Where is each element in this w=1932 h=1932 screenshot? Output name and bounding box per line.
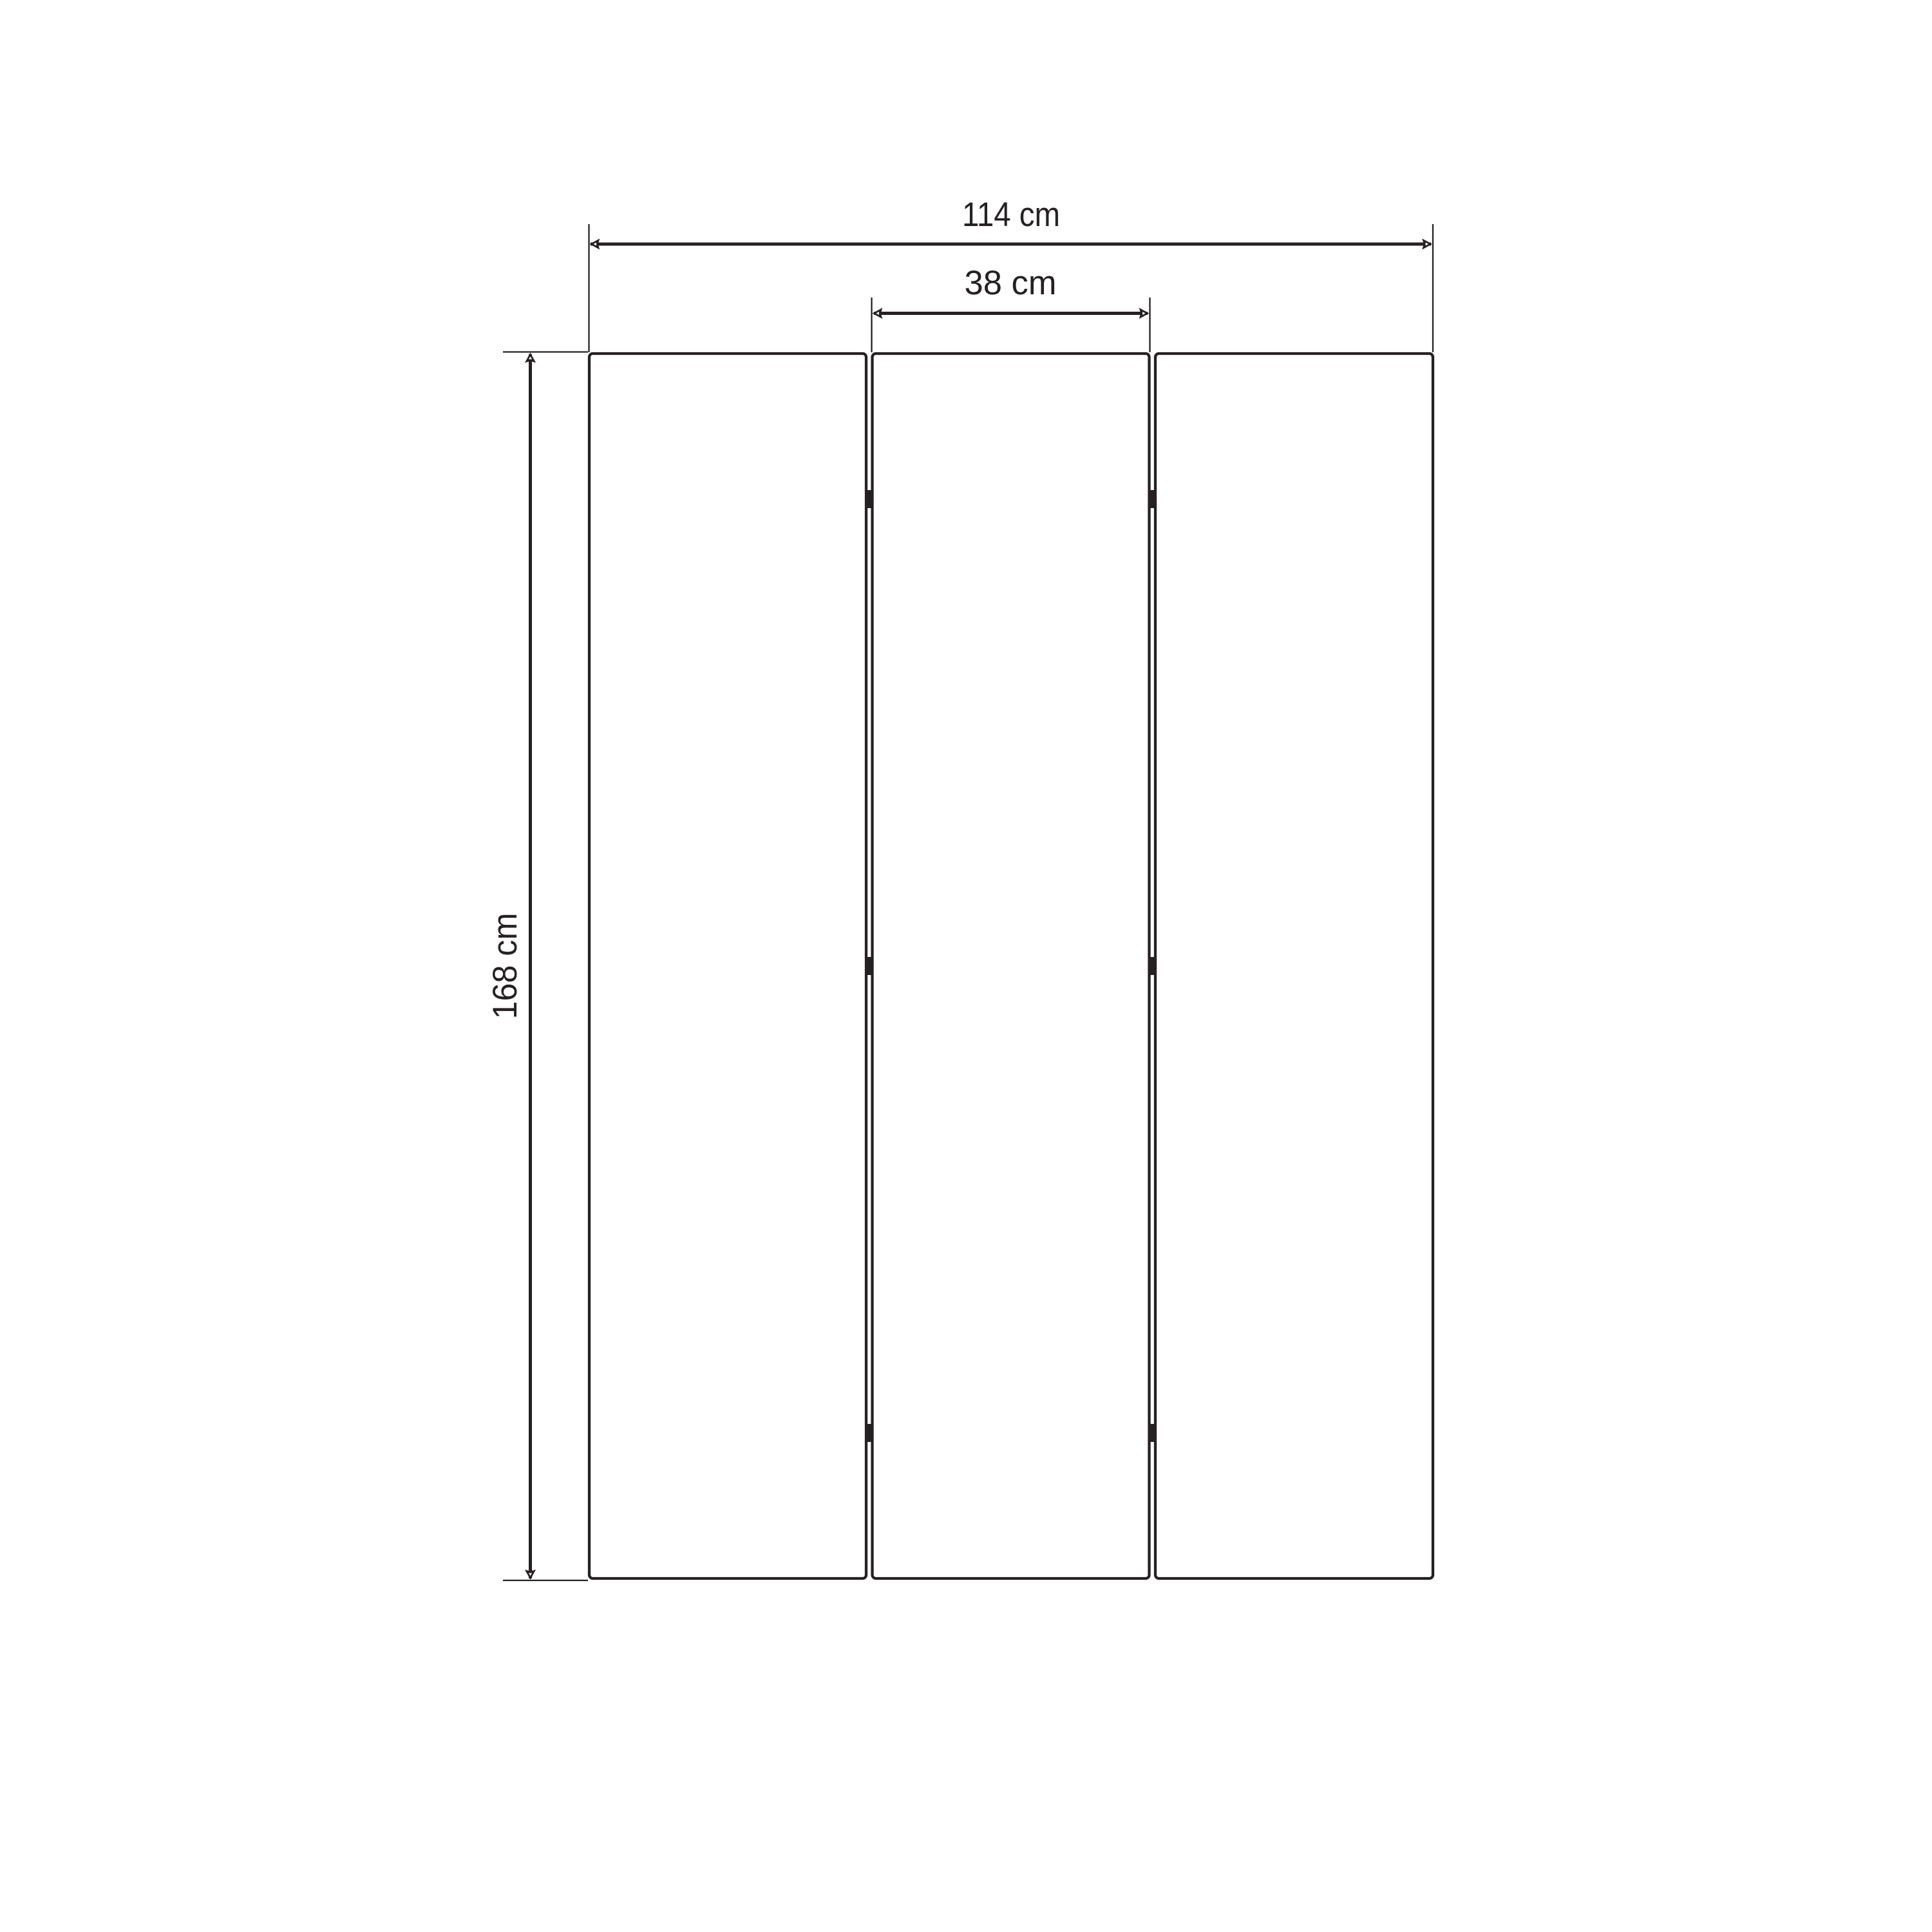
svg-text:114 cm: 114 cm — [962, 196, 1060, 234]
svg-text:38 cm: 38 cm — [965, 264, 1057, 302]
svg-text:168 cm: 168 cm — [486, 913, 524, 1019]
